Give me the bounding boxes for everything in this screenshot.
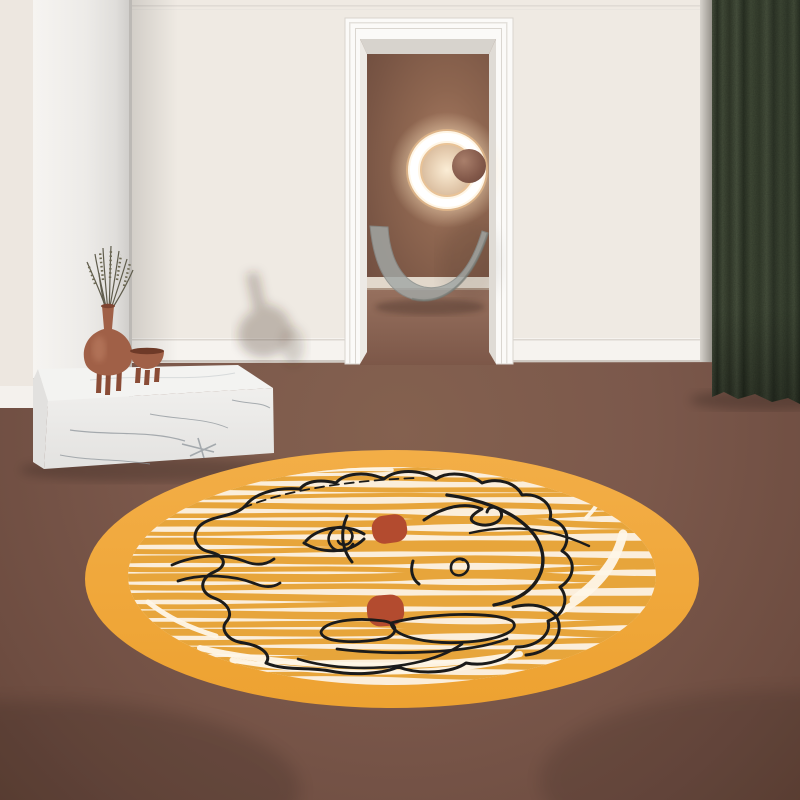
face-rug xyxy=(85,450,699,708)
frame-molding-left-2 xyxy=(355,28,356,364)
curtain-group xyxy=(690,0,800,410)
vase-highlight xyxy=(92,336,106,362)
wall-trim-groove xyxy=(130,5,706,7)
door-jamb-left xyxy=(360,39,367,364)
vase-rim xyxy=(101,304,115,308)
ring-wall-lamp xyxy=(389,112,505,228)
door-soffit xyxy=(360,39,496,54)
curtain-wall-shadow-strip xyxy=(700,0,712,362)
left-wall-baseboard xyxy=(0,386,36,408)
doorway xyxy=(345,18,513,365)
bowl-rim xyxy=(130,348,164,354)
rug-stripe xyxy=(112,640,672,643)
column-cast-shadow xyxy=(132,0,178,362)
chaise-floor-shadow xyxy=(375,299,485,315)
frame-molding-left-1 xyxy=(349,22,351,364)
curtain xyxy=(712,0,800,410)
bowl-shadow xyxy=(282,327,304,365)
rug-stripe xyxy=(112,559,672,562)
frame-molding-right-1 xyxy=(506,22,508,364)
rug-stripe xyxy=(112,505,672,508)
frame-molding-right-2 xyxy=(501,28,502,364)
frame-molding-top-2 xyxy=(355,28,502,29)
room-scene xyxy=(0,0,800,800)
door-jamb-right xyxy=(489,39,496,364)
curtain-bottom-shade xyxy=(712,0,800,410)
lamp-sphere xyxy=(452,149,486,183)
left-wall-sliver xyxy=(0,0,36,388)
frame-molding-top-1 xyxy=(349,22,507,24)
wall-trim-groove-2 xyxy=(130,9,706,10)
back-room xyxy=(360,39,505,365)
room-product-photo xyxy=(0,0,800,800)
